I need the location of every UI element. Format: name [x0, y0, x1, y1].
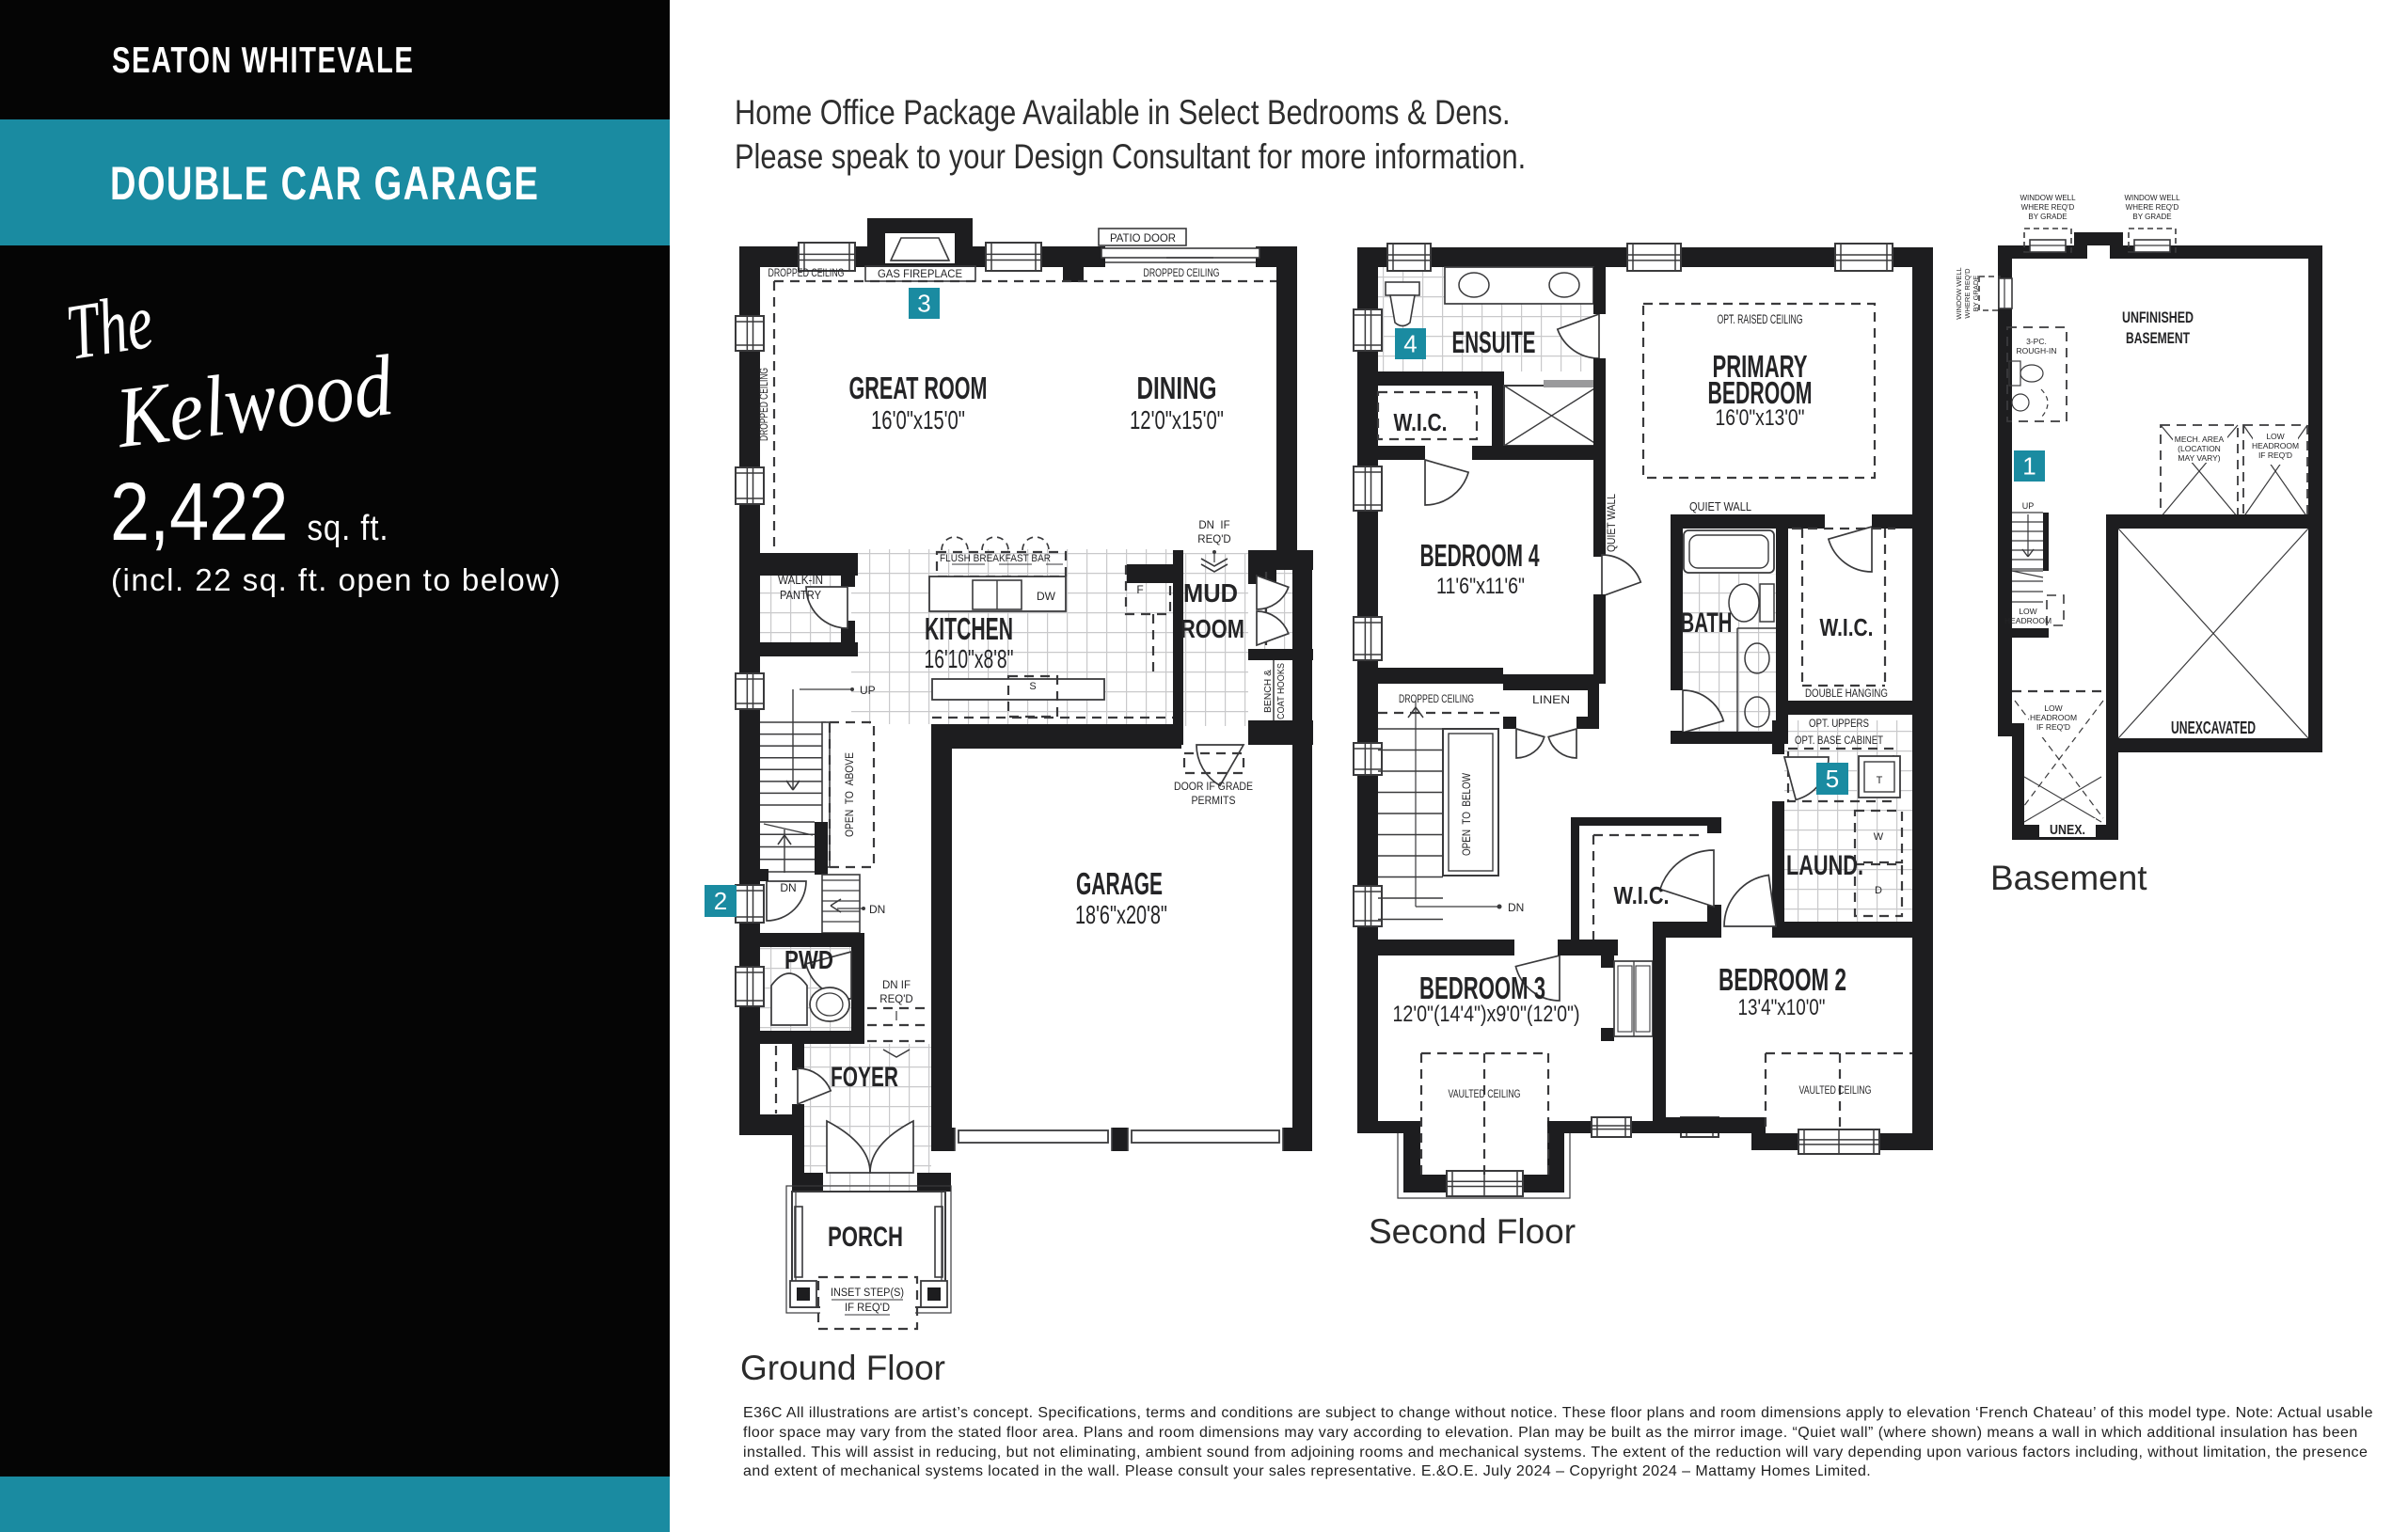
- svg-text:DROPPED CEILING: DROPPED CEILING: [1144, 266, 1220, 279]
- svg-text:BASEMENT: BASEMENT: [2126, 329, 2190, 347]
- svg-text:UP: UP: [2022, 501, 2035, 511]
- svg-text:WHERE REQ'D: WHERE REQ'D: [1963, 268, 1972, 319]
- svg-text:IF REQ'D: IF REQ'D: [845, 1303, 890, 1314]
- svg-text:MECH. AREA: MECH. AREA: [2175, 434, 2225, 444]
- svg-text:BY GRADE: BY GRADE: [2028, 213, 2067, 221]
- svg-text:UNEX.: UNEX.: [2050, 822, 2085, 838]
- svg-text:LOW: LOW: [2019, 607, 2036, 616]
- svg-text:ROUGH-IN: ROUGH-IN: [2017, 346, 2057, 355]
- svg-text:16'0"x15'0": 16'0"x15'0": [871, 405, 965, 434]
- svg-text:S: S: [1029, 681, 1036, 692]
- svg-text:11'6"x11'6": 11'6"x11'6": [1436, 574, 1525, 599]
- svg-text:VAULTED CEILING: VAULTED CEILING: [1449, 1089, 1521, 1100]
- svg-text:OPT. BASE CABINET: OPT. BASE CABINET: [1795, 734, 1884, 747]
- svg-text:OPEN TO BELOW: OPEN TO BELOW: [1462, 773, 1473, 856]
- svg-text:DN IF: DN IF: [1198, 520, 1229, 531]
- svg-text:IF REQ'D: IF REQ'D: [2258, 450, 2292, 460]
- svg-text:REQ'D: REQ'D: [1197, 534, 1230, 545]
- svg-text:WINDOW WELL: WINDOW WELL: [2124, 194, 2180, 202]
- svg-text:QUIET WALL: QUIET WALL: [1605, 494, 1618, 552]
- svg-text:GARAGE: GARAGE: [1076, 866, 1163, 901]
- svg-text:18'6"x20'8": 18'6"x20'8": [1075, 900, 1167, 929]
- svg-text:5: 5: [1826, 765, 1839, 793]
- svg-text:DINING: DINING: [1137, 371, 1217, 405]
- svg-text:WINDOW WELL: WINDOW WELL: [1955, 267, 1963, 319]
- svg-text:MUD: MUD: [1183, 578, 1238, 608]
- svg-text:3-PC.: 3-PC.: [2026, 337, 2047, 346]
- svg-text:LINEN: LINEN: [1532, 693, 1570, 706]
- svg-text:WHERE REQ'D: WHERE REQ'D: [2021, 203, 2075, 212]
- svg-text:W.I.C.: W.I.C.: [1614, 881, 1670, 909]
- svg-text:WINDOW WELL: WINDOW WELL: [2020, 194, 2076, 202]
- svg-text:1: 1: [2022, 452, 2036, 481]
- svg-text:2: 2: [714, 887, 727, 915]
- svg-text:LAUND.: LAUND.: [1786, 850, 1863, 881]
- svg-text:BY GRADE: BY GRADE: [1972, 276, 1980, 312]
- svg-text:GAS FIREPLACE: GAS FIREPLACE: [878, 269, 962, 280]
- svg-text:HEADROOM: HEADROOM: [2252, 441, 2299, 450]
- svg-text:BEDROOM 4: BEDROOM 4: [1420, 538, 1540, 573]
- svg-text:OPT. RAISED CEILING: OPT. RAISED CEILING: [1718, 312, 1803, 326]
- svg-text:F: F: [1136, 583, 1143, 596]
- svg-text:PORCH: PORCH: [828, 1222, 903, 1253]
- svg-text:HEADROOM: HEADROOM: [2004, 616, 2052, 625]
- svg-text:LOW: LOW: [2044, 703, 2062, 713]
- svg-text:W: W: [1874, 831, 1884, 843]
- svg-text:BENCH &: BENCH &: [1262, 670, 1274, 713]
- svg-text:VAULTED CEILING: VAULTED CEILING: [1799, 1085, 1872, 1097]
- svg-text:BEDROOM 2: BEDROOM 2: [1719, 962, 1846, 997]
- svg-text:WALK-IN: WALK-IN: [778, 573, 823, 587]
- svg-text:DW: DW: [1037, 590, 1056, 603]
- svg-text:4: 4: [1403, 330, 1417, 358]
- svg-text:UP: UP: [860, 684, 876, 697]
- svg-text:HEADROOM: HEADROOM: [2030, 713, 2077, 722]
- svg-text:DROPPED CEILING: DROPPED CEILING: [1399, 694, 1474, 705]
- svg-text:13'4"x10'0": 13'4"x10'0": [1738, 995, 1826, 1020]
- svg-text:W.I.C.: W.I.C.: [1394, 408, 1448, 436]
- svg-text:3: 3: [917, 290, 930, 318]
- svg-text:DOOR IF GRADE: DOOR IF GRADE: [1174, 782, 1253, 793]
- svg-text:COAT HOOKS: COAT HOOKS: [1275, 663, 1287, 719]
- svg-text:T: T: [1877, 775, 1883, 786]
- svg-text:REQ'D: REQ'D: [879, 994, 912, 1005]
- svg-text:PANTRY: PANTRY: [780, 588, 821, 602]
- svg-text:WHERE REQ'D: WHERE REQ'D: [2126, 203, 2179, 212]
- svg-text:QUIET WALL: QUIET WALL: [1689, 500, 1751, 513]
- svg-text:KITCHEN: KITCHEN: [925, 611, 1013, 646]
- svg-text:12'0"(14'4")x9'0"(12'0"): 12'0"(14'4")x9'0"(12'0"): [1393, 1002, 1580, 1027]
- svg-text:DN: DN: [869, 903, 885, 916]
- svg-text:PWD: PWD: [784, 945, 833, 974]
- svg-text:FOYER: FOYER: [831, 1062, 898, 1093]
- svg-text:12'0"x15'0": 12'0"x15'0": [1130, 405, 1224, 434]
- svg-text:GREAT ROOM: GREAT ROOM: [849, 371, 988, 405]
- svg-text:16'10"x8'8": 16'10"x8'8": [925, 644, 1014, 673]
- svg-text:D: D: [1875, 885, 1882, 896]
- svg-text:IF REQ'D: IF REQ'D: [2036, 722, 2070, 732]
- svg-text:BY GRADE: BY GRADE: [2132, 213, 2171, 221]
- svg-text:W.I.C.: W.I.C.: [1820, 613, 1874, 641]
- svg-text:MAY VARY): MAY VARY): [2178, 453, 2220, 463]
- svg-text:LOW: LOW: [2266, 432, 2284, 441]
- svg-text:DROPPED CEILING: DROPPED CEILING: [768, 266, 845, 279]
- svg-text:BATH: BATH: [1681, 608, 1733, 639]
- svg-text:ROOM: ROOM: [1180, 614, 1244, 643]
- svg-text:PERMITS: PERMITS: [1192, 796, 1236, 807]
- svg-text:INSET STEP(S): INSET STEP(S): [831, 1287, 904, 1299]
- svg-text:OPT. UPPERS: OPT. UPPERS: [1809, 717, 1869, 730]
- svg-text:UNFINISHED: UNFINISHED: [2122, 308, 2194, 326]
- svg-text:OPEN TO ABOVE: OPEN TO ABOVE: [845, 752, 856, 837]
- svg-text:PATIO DOOR: PATIO DOOR: [1110, 233, 1176, 245]
- svg-text:UNEXCAVATED: UNEXCAVATED: [2171, 719, 2256, 737]
- svg-text:FLUSH BREAKFAST BAR: FLUSH BREAKFAST BAR: [940, 553, 1051, 564]
- svg-text:DN: DN: [780, 881, 796, 894]
- svg-text:DN IF: DN IF: [882, 980, 911, 991]
- svg-text:DROPPED CEILING: DROPPED CEILING: [759, 368, 770, 441]
- svg-text:BEDROOM 3: BEDROOM 3: [1419, 971, 1545, 1005]
- svg-text:16'0"x13'0": 16'0"x13'0": [1716, 405, 1805, 431]
- svg-text:ENSUITE: ENSUITE: [1452, 325, 1536, 359]
- svg-text:DOUBLE HANGING: DOUBLE HANGING: [1805, 688, 1888, 700]
- svg-text:(LOCATION: (LOCATION: [2178, 444, 2221, 453]
- svg-text:DN: DN: [1508, 901, 1524, 914]
